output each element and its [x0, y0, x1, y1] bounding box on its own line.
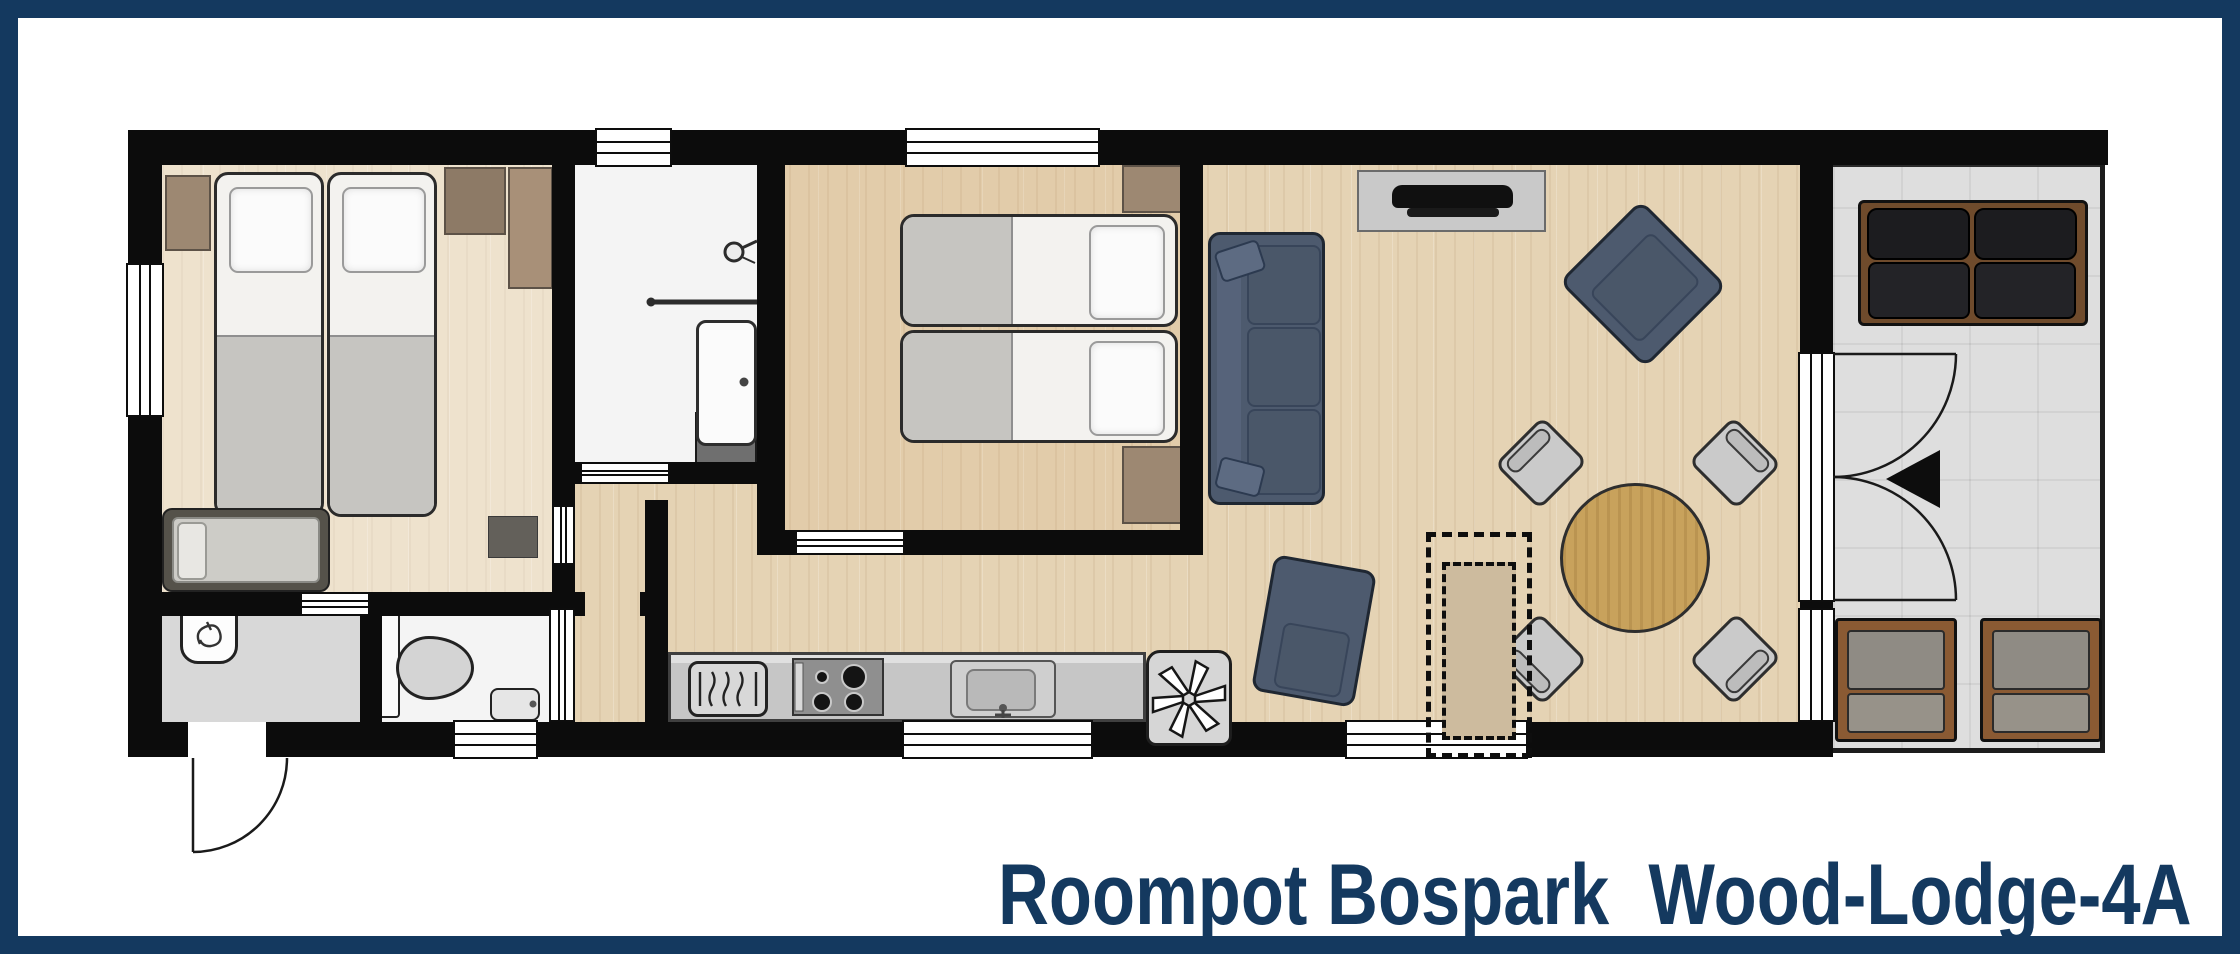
outdoor-sofa-seat [1868, 262, 1970, 319]
washbasin [696, 320, 757, 446]
twin-bed-1 [214, 172, 324, 517]
door-toilet [549, 608, 575, 722]
entrance-door-gap [188, 722, 266, 757]
wall-bedroom2-south [757, 530, 795, 555]
wall-hall-toilet [360, 616, 382, 722]
sofa-cushion [1247, 327, 1321, 407]
outdoor-sofa [1858, 200, 2088, 326]
wall-bedroom1-hall [162, 592, 300, 616]
window-top-bathroom [595, 128, 672, 167]
pillow [1089, 341, 1165, 436]
entrance-door-swing [193, 758, 287, 852]
sofa [1208, 232, 1325, 505]
window-top-bedroom2 [905, 128, 1100, 167]
kitchen-sink [950, 660, 1056, 718]
plan-title: Roompot Bospark Wood-Lodge-4A [998, 852, 2192, 938]
window-bottom-kitchen [902, 720, 1093, 759]
nightstand [1122, 165, 1188, 213]
wall-bathroom-bedroom2 [757, 165, 785, 530]
terrace-border-bottom [1833, 748, 2105, 753]
outdoor-sofa-seat [1974, 262, 2076, 319]
twin-bed-4 [900, 330, 1178, 443]
twin-bed-2 [327, 172, 437, 517]
tv-icon [1392, 185, 1513, 208]
blanket [903, 333, 1013, 440]
washing-machine [180, 610, 238, 664]
wardrobe-tall [508, 167, 553, 289]
sink-basin [966, 669, 1036, 711]
outdoor-chair [1980, 618, 2102, 742]
dishwasher [688, 661, 768, 717]
pillow [1089, 225, 1165, 320]
outdoor-chair-back [1847, 630, 1945, 690]
outdoor-chair-seat [1847, 693, 1945, 733]
door-bedroom2 [795, 530, 905, 555]
door-bedroom1 [552, 505, 575, 565]
tv-sideboard [1357, 170, 1546, 232]
french-doors-frame [1798, 352, 1835, 602]
optional-cupboard [1442, 562, 1516, 740]
wall-bedroom2-south [905, 530, 1203, 555]
hand-basin [490, 688, 540, 721]
outdoor-chair-back [1992, 630, 2090, 690]
door-mat [488, 516, 538, 558]
sofa-back [1217, 263, 1241, 475]
window-right-living [1798, 608, 1835, 722]
wood-stove [1146, 650, 1232, 746]
wall-kitchen [645, 500, 668, 722]
armchair-cushion [1273, 622, 1351, 699]
door-bathroom [580, 462, 670, 484]
armchair-cushion [1589, 231, 1702, 344]
hob [792, 658, 884, 716]
nightstand [1122, 446, 1188, 524]
blanket [903, 217, 1013, 324]
twin-bed-3 [900, 214, 1178, 327]
cot-bed [162, 508, 330, 592]
outdoor-chair-seat [1992, 693, 2090, 733]
blanket [330, 335, 434, 514]
dining-table [1560, 483, 1710, 633]
floorplan-canvas: Roompot Bospark Wood-Lodge-4A [0, 0, 2240, 954]
wall-bedroom2-living [1180, 165, 1203, 555]
wall-bathroom-south [552, 462, 580, 484]
outdoor-sofa-back-cushion [1974, 208, 2077, 260]
nightstand [165, 175, 211, 251]
window-left-bedroom1 [126, 263, 164, 417]
pillow [342, 187, 426, 273]
outdoor-sofa-back-cushion [1867, 208, 1970, 260]
wall-bedroom1-bathroom [552, 165, 575, 505]
cot-pillow [177, 522, 207, 580]
blanket [217, 335, 321, 514]
window-bottom-toilet [453, 720, 538, 759]
pillow [229, 187, 313, 273]
outdoor-chair [1835, 618, 1957, 742]
tv-stand [1407, 208, 1499, 217]
wardrobe-low [444, 167, 506, 235]
door-hall-bedroom1 [300, 592, 370, 616]
wall-left [128, 130, 162, 757]
